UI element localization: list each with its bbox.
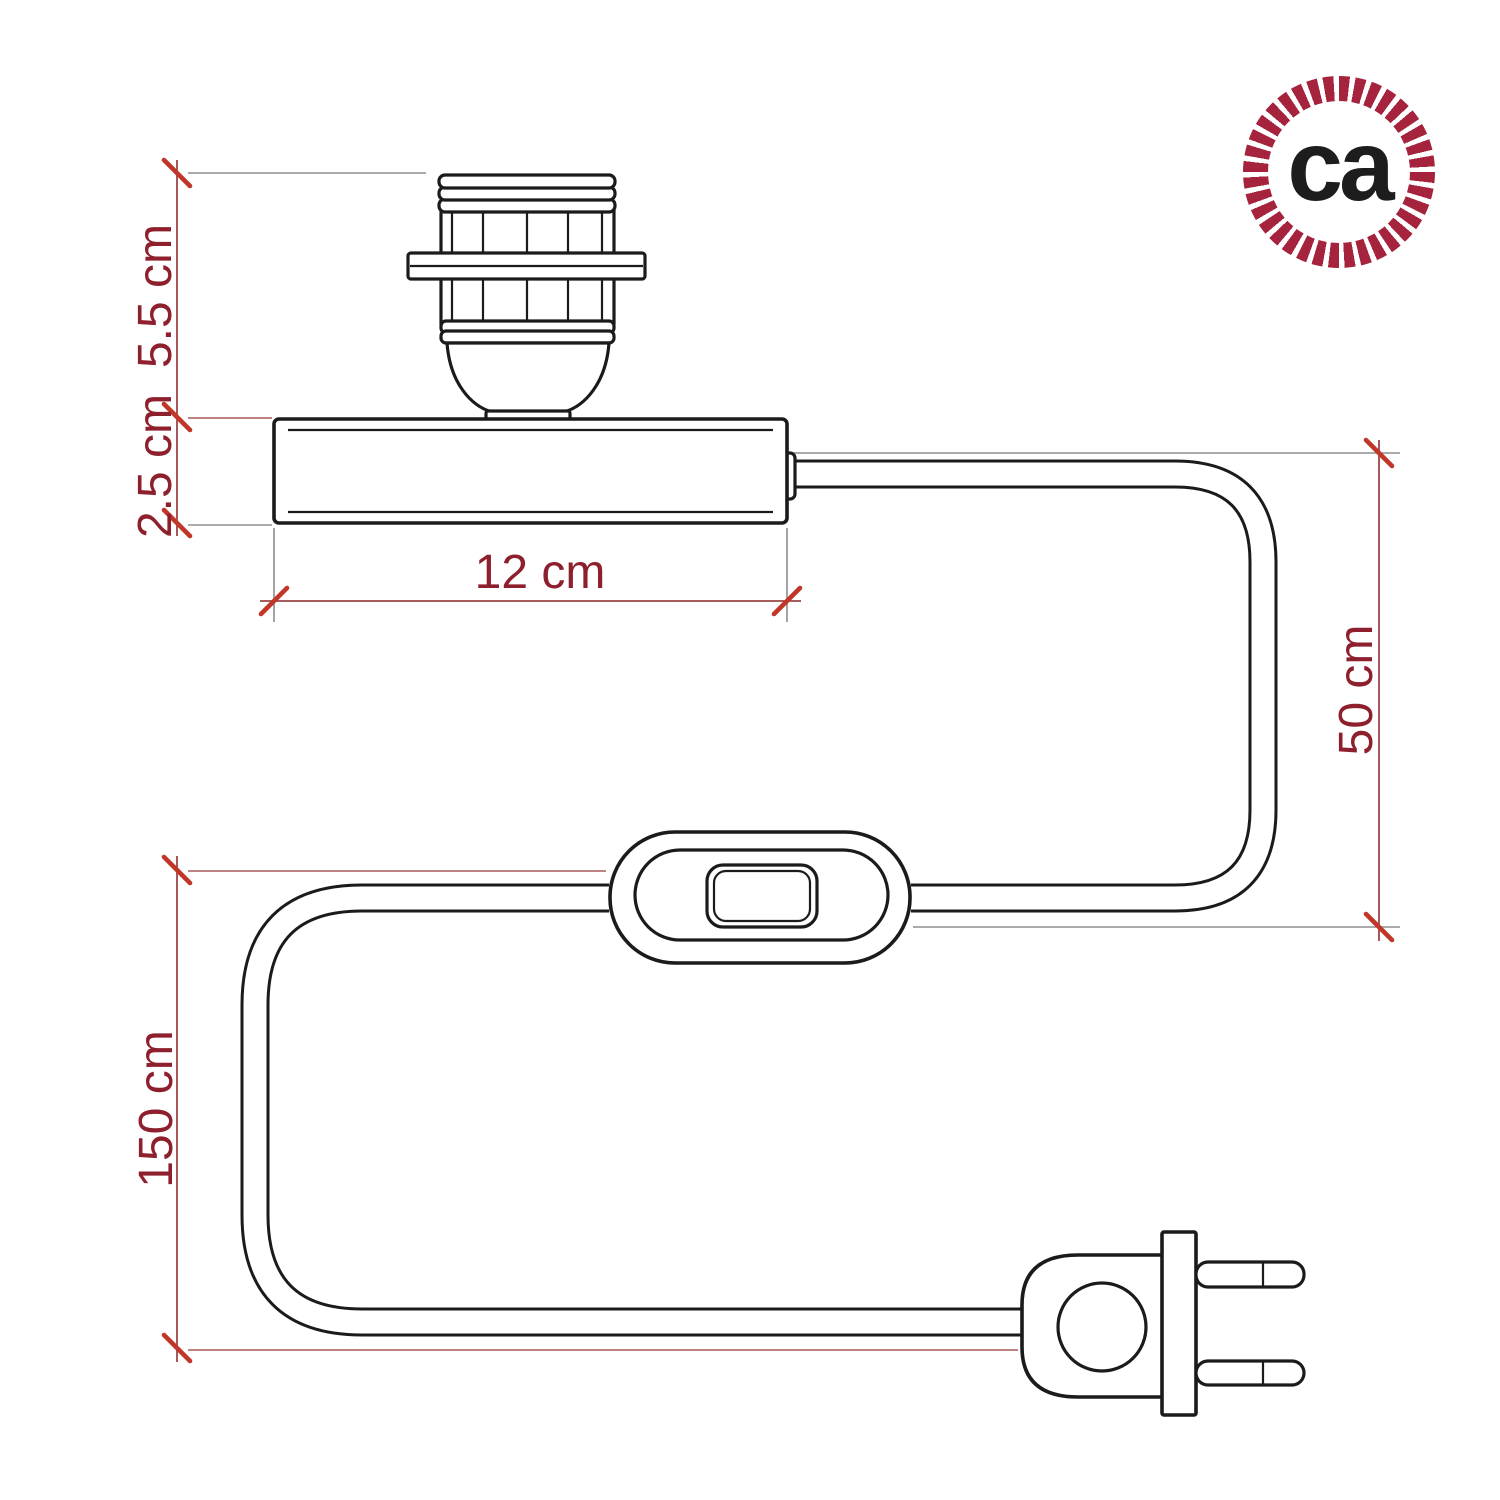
plug-cable-grip xyxy=(1058,1283,1146,1371)
plug-prong-bottom xyxy=(1196,1361,1304,1385)
socket-neck-ridge xyxy=(441,331,614,343)
label-socket-height: 5.5 cm xyxy=(129,224,182,368)
creative-cables-logo: ca xyxy=(1243,76,1435,268)
inline-switch xyxy=(610,832,910,963)
dimension-ticks xyxy=(164,160,1392,1361)
plug-face-plate xyxy=(1162,1232,1196,1415)
base-body xyxy=(274,419,787,523)
label-base-height: 2.5 cm xyxy=(129,394,182,538)
plug-prong-top xyxy=(1196,1262,1304,1287)
lamp-base xyxy=(274,419,795,523)
label-cable-drop: 50 cm xyxy=(1330,625,1383,756)
logo-monogram: ca xyxy=(1287,116,1390,216)
two-prong-plug xyxy=(1022,1232,1304,1415)
label-cable-length: 150 cm xyxy=(130,1030,183,1187)
lamp-socket xyxy=(408,175,645,420)
socket-threads xyxy=(439,175,615,212)
label-base-width: 12 cm xyxy=(475,546,606,599)
dimension-lines xyxy=(177,160,1379,1362)
switch-rocker-button xyxy=(707,865,817,927)
extension-lines xyxy=(188,173,1400,1350)
socket-dome xyxy=(447,343,609,412)
logo-inner-circle: ca xyxy=(1268,101,1410,243)
